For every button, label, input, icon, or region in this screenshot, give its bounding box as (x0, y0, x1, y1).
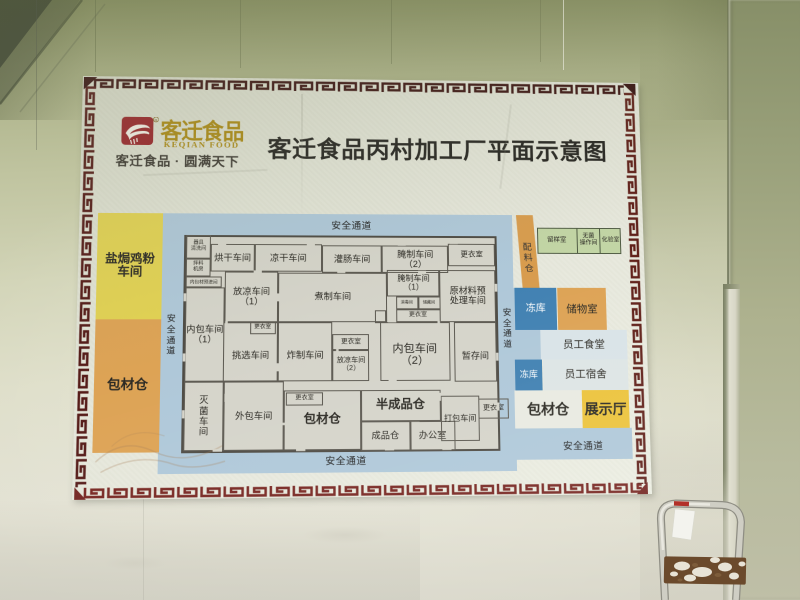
svg-text:R: R (154, 117, 157, 122)
